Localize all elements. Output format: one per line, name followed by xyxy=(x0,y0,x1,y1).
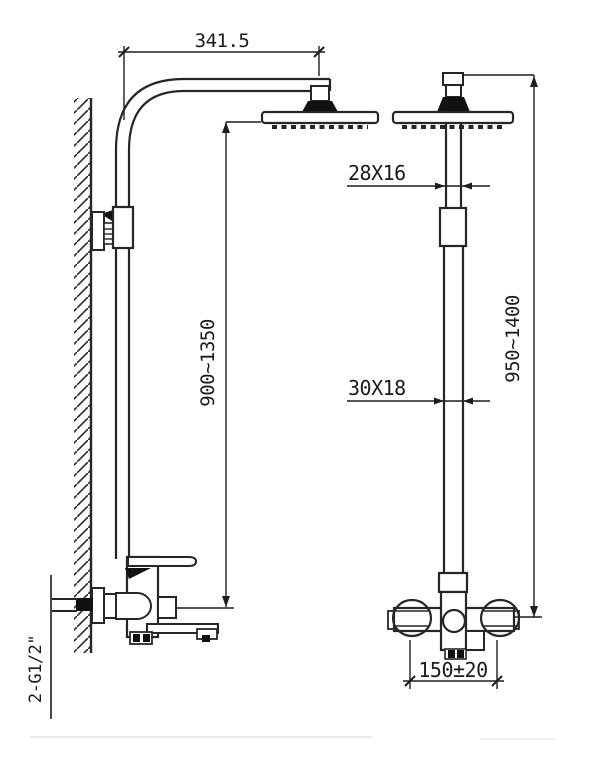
dim-lower-tube-label: 30X18 xyxy=(348,376,406,400)
dim-arm-reach xyxy=(118,46,325,120)
arrowhead-down xyxy=(530,606,538,617)
diverter-knob-front xyxy=(443,610,465,632)
wall-escutcheon-side xyxy=(92,588,104,623)
dim-arm-reach-label: 341.5 xyxy=(195,30,250,52)
shower-head-plate-side xyxy=(262,112,378,123)
front-view xyxy=(388,73,519,659)
arrowhead-right xyxy=(434,398,444,405)
arrowhead-left xyxy=(462,183,472,190)
riser-connector-nut-front xyxy=(439,573,467,592)
foot-pad xyxy=(133,634,140,642)
arrowhead-left xyxy=(463,398,473,405)
technical-drawing-sheet: 341.5 900~1350 950~1400 28X16 30X18 xyxy=(0,0,602,775)
bracket-slider-block xyxy=(113,207,133,248)
wall-slide-bracket xyxy=(92,207,133,250)
mixer-handle-lever xyxy=(128,557,196,566)
union-nut-side xyxy=(104,594,116,618)
spout-outlet-side xyxy=(158,597,176,618)
ball-joint-cone-side xyxy=(302,101,338,112)
shower-head-plate-front xyxy=(393,112,513,123)
outlet-pad xyxy=(448,650,455,658)
pipe-inner-line xyxy=(129,91,329,559)
ball-joint-top-front xyxy=(443,73,463,85)
outlet-pad xyxy=(457,650,464,658)
arrowhead-up xyxy=(222,122,230,133)
wall-hatching xyxy=(74,98,91,653)
dim-inlet-thread-label: 2-G1/2" xyxy=(26,635,46,703)
shower-column-drawing: 341.5 900~1350 950~1400 28X16 30X18 xyxy=(0,0,602,775)
arrowhead-down xyxy=(222,596,230,607)
ball-joint-nut-front xyxy=(446,85,461,97)
inlet-union-side xyxy=(116,593,151,619)
foot-pad xyxy=(143,634,150,642)
ball-joint-cone-front xyxy=(437,97,470,112)
wall-section xyxy=(74,98,91,653)
overhead-shower-side-view xyxy=(262,86,378,127)
pipe-outer-line xyxy=(116,79,330,559)
riser-pipe-side-view xyxy=(116,79,330,559)
tube-coupler xyxy=(440,208,466,246)
dim-upper-tube-label: 28X16 xyxy=(348,161,406,185)
dim-overall-height-label: 950~1400 xyxy=(502,295,524,383)
supply-pipe-in-wall xyxy=(76,598,93,611)
foot-pad xyxy=(202,635,210,642)
ball-joint-nut-side xyxy=(311,86,329,101)
outlet-block-front xyxy=(466,631,484,650)
bracket-wall-flange xyxy=(92,212,104,250)
dim-riser-height-label: 900~1350 xyxy=(197,319,219,407)
arrowhead-up xyxy=(530,76,538,87)
arrowhead-right xyxy=(435,183,445,190)
dim-inlet-spacing-label: 150±20 xyxy=(418,658,487,682)
